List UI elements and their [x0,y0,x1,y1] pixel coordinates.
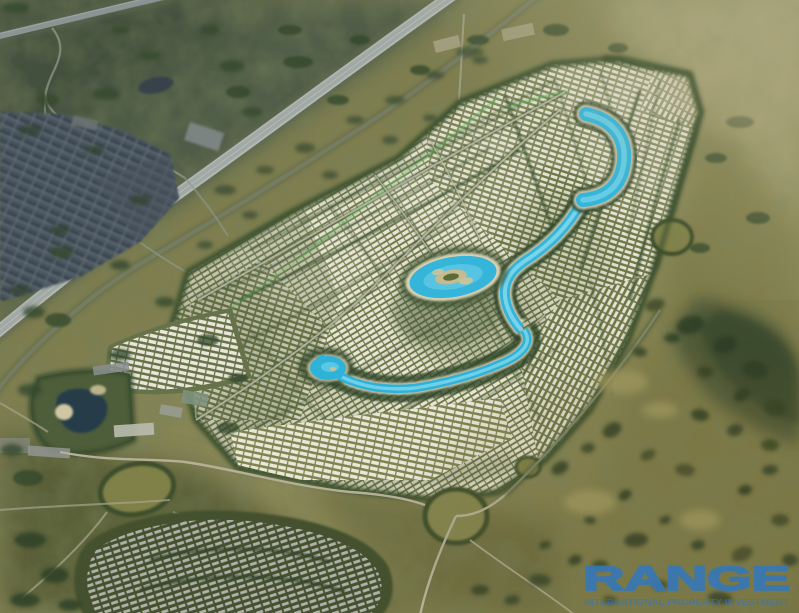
svg-text:INTERNATIONAL PROPERTY INVESTM: INTERNATIONAL PROPERTY INVESTMENT [584,597,790,607]
svg-text:RANGE: RANGE [583,560,790,598]
